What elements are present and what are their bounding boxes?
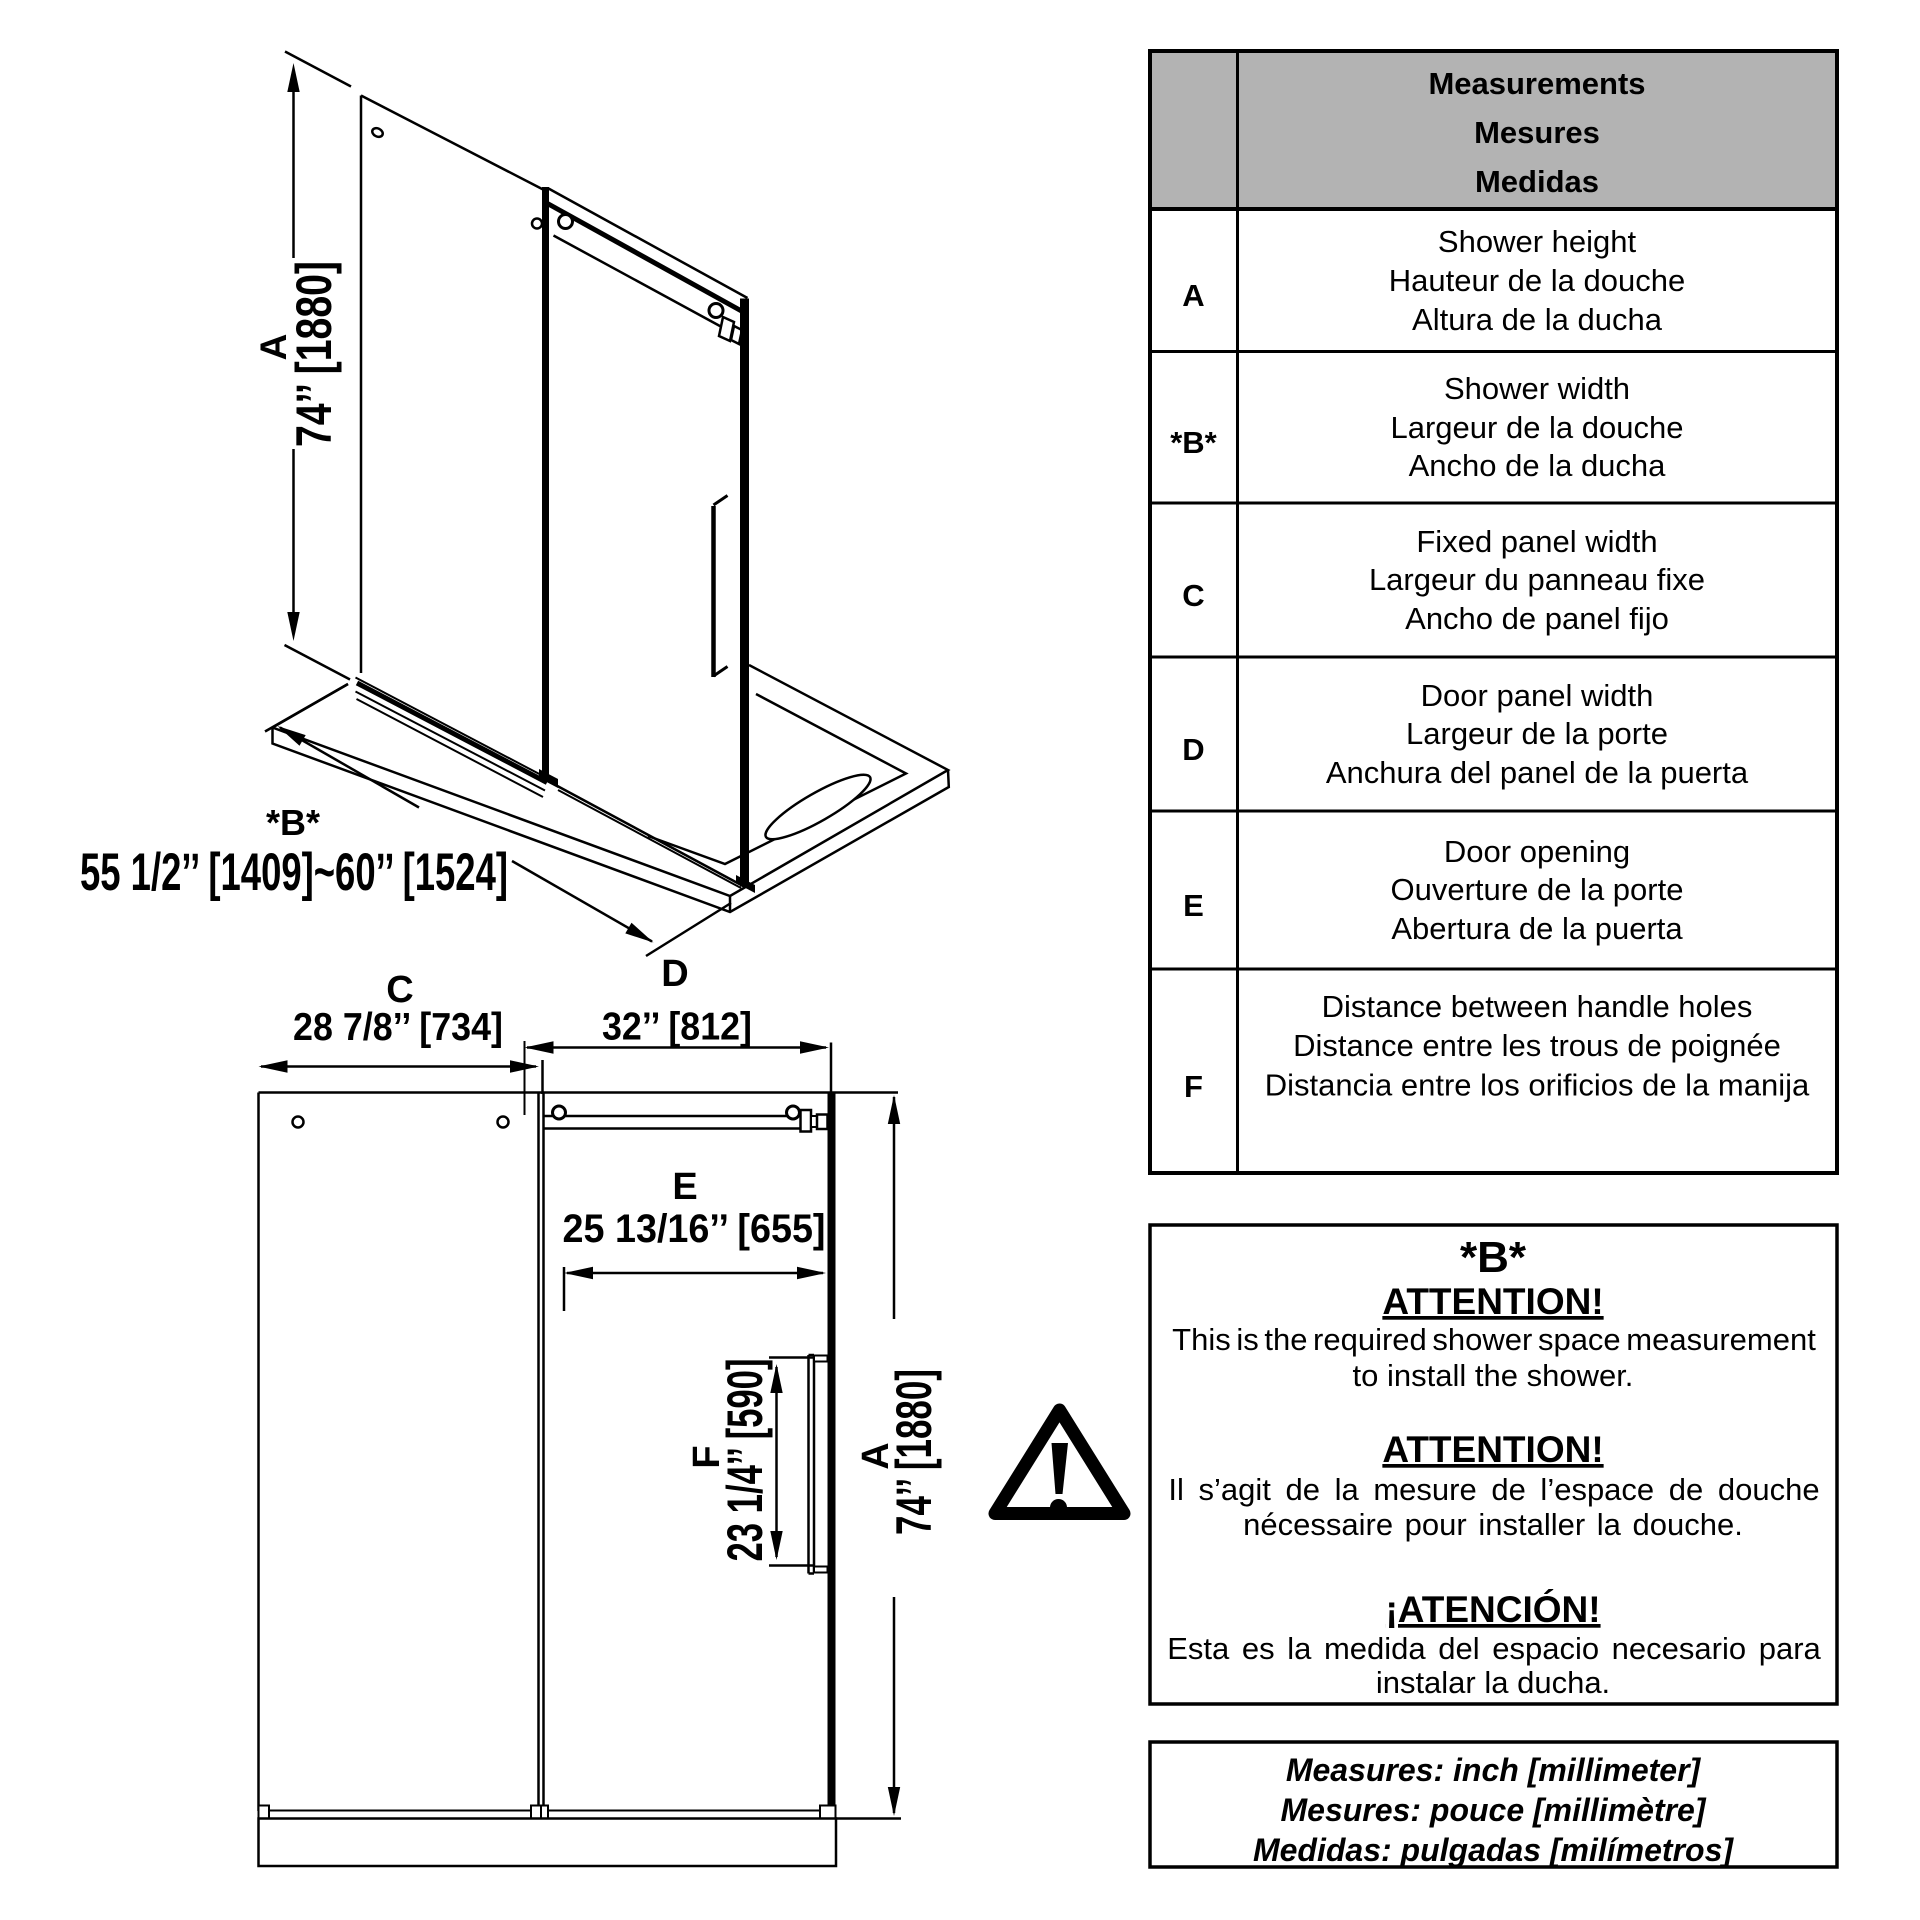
svg-text:Medidas: Medidas <box>1475 164 1599 199</box>
svg-text:23 1/4’’ [590]: 23 1/4’’ [590] <box>717 1359 773 1562</box>
svg-text:Largeur de la porte: Largeur de la porte <box>1406 716 1668 751</box>
svg-text:A: A <box>1182 278 1204 313</box>
svg-text:55 1/2’’ [1409]~60’’ [1524]: 55 1/2’’ [1409]~60’’ [1524] <box>80 843 508 902</box>
svg-text:Ancho de panel fijo: Ancho de panel fijo <box>1405 601 1669 636</box>
svg-text:Measures: inch [millimeter]: Measures: inch [millimeter] <box>1286 1752 1702 1788</box>
svg-text:Medidas: pulgadas [milímetros]: Medidas: pulgadas [milímetros] <box>1253 1832 1734 1868</box>
svg-text:C: C <box>1182 578 1204 613</box>
svg-text:Shower width: Shower width <box>1444 371 1630 406</box>
svg-text:*B*: *B* <box>266 802 320 843</box>
svg-text:Ancho de la ducha: Ancho de la ducha <box>1409 448 1667 483</box>
svg-text:Distance entre les trous de po: Distance entre les trous de poignée <box>1293 1028 1781 1063</box>
svg-text:D: D <box>1182 732 1204 767</box>
svg-text:ATTENTION!: ATTENTION! <box>1382 1281 1603 1322</box>
svg-text:Largeur de la douche: Largeur de la douche <box>1390 410 1683 445</box>
svg-text:Door opening: Door opening <box>1444 834 1630 869</box>
svg-text:Esta es la medida del espacio: Esta es la medida del espacio necesario … <box>1167 1631 1821 1666</box>
svg-text:74’’ [1880]: 74’’ [1880] <box>886 1369 942 1535</box>
svg-text:Door panel width: Door panel width <box>1421 678 1654 713</box>
svg-text:Distance between handle holes: Distance between handle holes <box>1322 989 1753 1024</box>
svg-text:32’’ [812]: 32’’ [812] <box>602 1006 752 1049</box>
svg-text:to install the shower.: to install the shower. <box>1353 1358 1634 1393</box>
svg-text:Fixed panel width: Fixed panel width <box>1416 524 1657 559</box>
svg-text:Ouverture de la porte: Ouverture de la porte <box>1391 872 1684 907</box>
svg-text:instalar la ducha.: instalar la ducha. <box>1376 1665 1610 1700</box>
svg-text:74’’ [1880]: 74’’ [1880] <box>286 261 342 447</box>
svg-text:E: E <box>1183 888 1204 923</box>
svg-text:ATTENTION!: ATTENTION! <box>1382 1429 1603 1470</box>
svg-text:C: C <box>386 969 413 1011</box>
svg-text:*B*: *B* <box>1170 425 1217 460</box>
svg-text:E: E <box>672 1166 697 1208</box>
svg-text:25 13/16’’ [655]: 25 13/16’’ [655] <box>563 1207 826 1251</box>
svg-text:Abertura de la puerta: Abertura de la puerta <box>1391 911 1683 946</box>
svg-text:¡ATENCIÓN!: ¡ATENCIÓN! <box>1385 1588 1600 1630</box>
svg-text:Anchura del panel de la puerta: Anchura del panel de la puerta <box>1326 755 1749 790</box>
svg-text:Hauteur de la douche: Hauteur de la douche <box>1389 263 1685 298</box>
svg-text:This is the required shower sp: This is the required shower space measur… <box>1172 1322 1816 1357</box>
svg-text:Mesures: Mesures <box>1474 115 1600 150</box>
svg-text:28 7/8’’ [734]: 28 7/8’’ [734] <box>293 1006 503 1049</box>
svg-text:*B*: *B* <box>1460 1233 1527 1282</box>
svg-text:Shower height: Shower height <box>1438 224 1637 259</box>
svg-text:Il s’agit de la mesure de l’es: Il s’agit de la mesure de l’espace de do… <box>1168 1472 1819 1507</box>
svg-text:D: D <box>661 953 688 995</box>
svg-text:F: F <box>1184 1069 1203 1104</box>
svg-text:Measurements: Measurements <box>1428 66 1645 101</box>
svg-text:nécessaire pour installer la d: nécessaire pour installer la douche. <box>1243 1507 1743 1542</box>
svg-text:Mesures: pouce [millimètre]: Mesures: pouce [millimètre] <box>1281 1792 1707 1828</box>
svg-text:Distancia entre los orificios: Distancia entre los orificios de la mani… <box>1265 1068 1810 1103</box>
svg-text:Largeur du panneau fixe: Largeur du panneau fixe <box>1369 562 1705 597</box>
svg-text:Altura de la ducha: Altura de la ducha <box>1412 302 1663 337</box>
